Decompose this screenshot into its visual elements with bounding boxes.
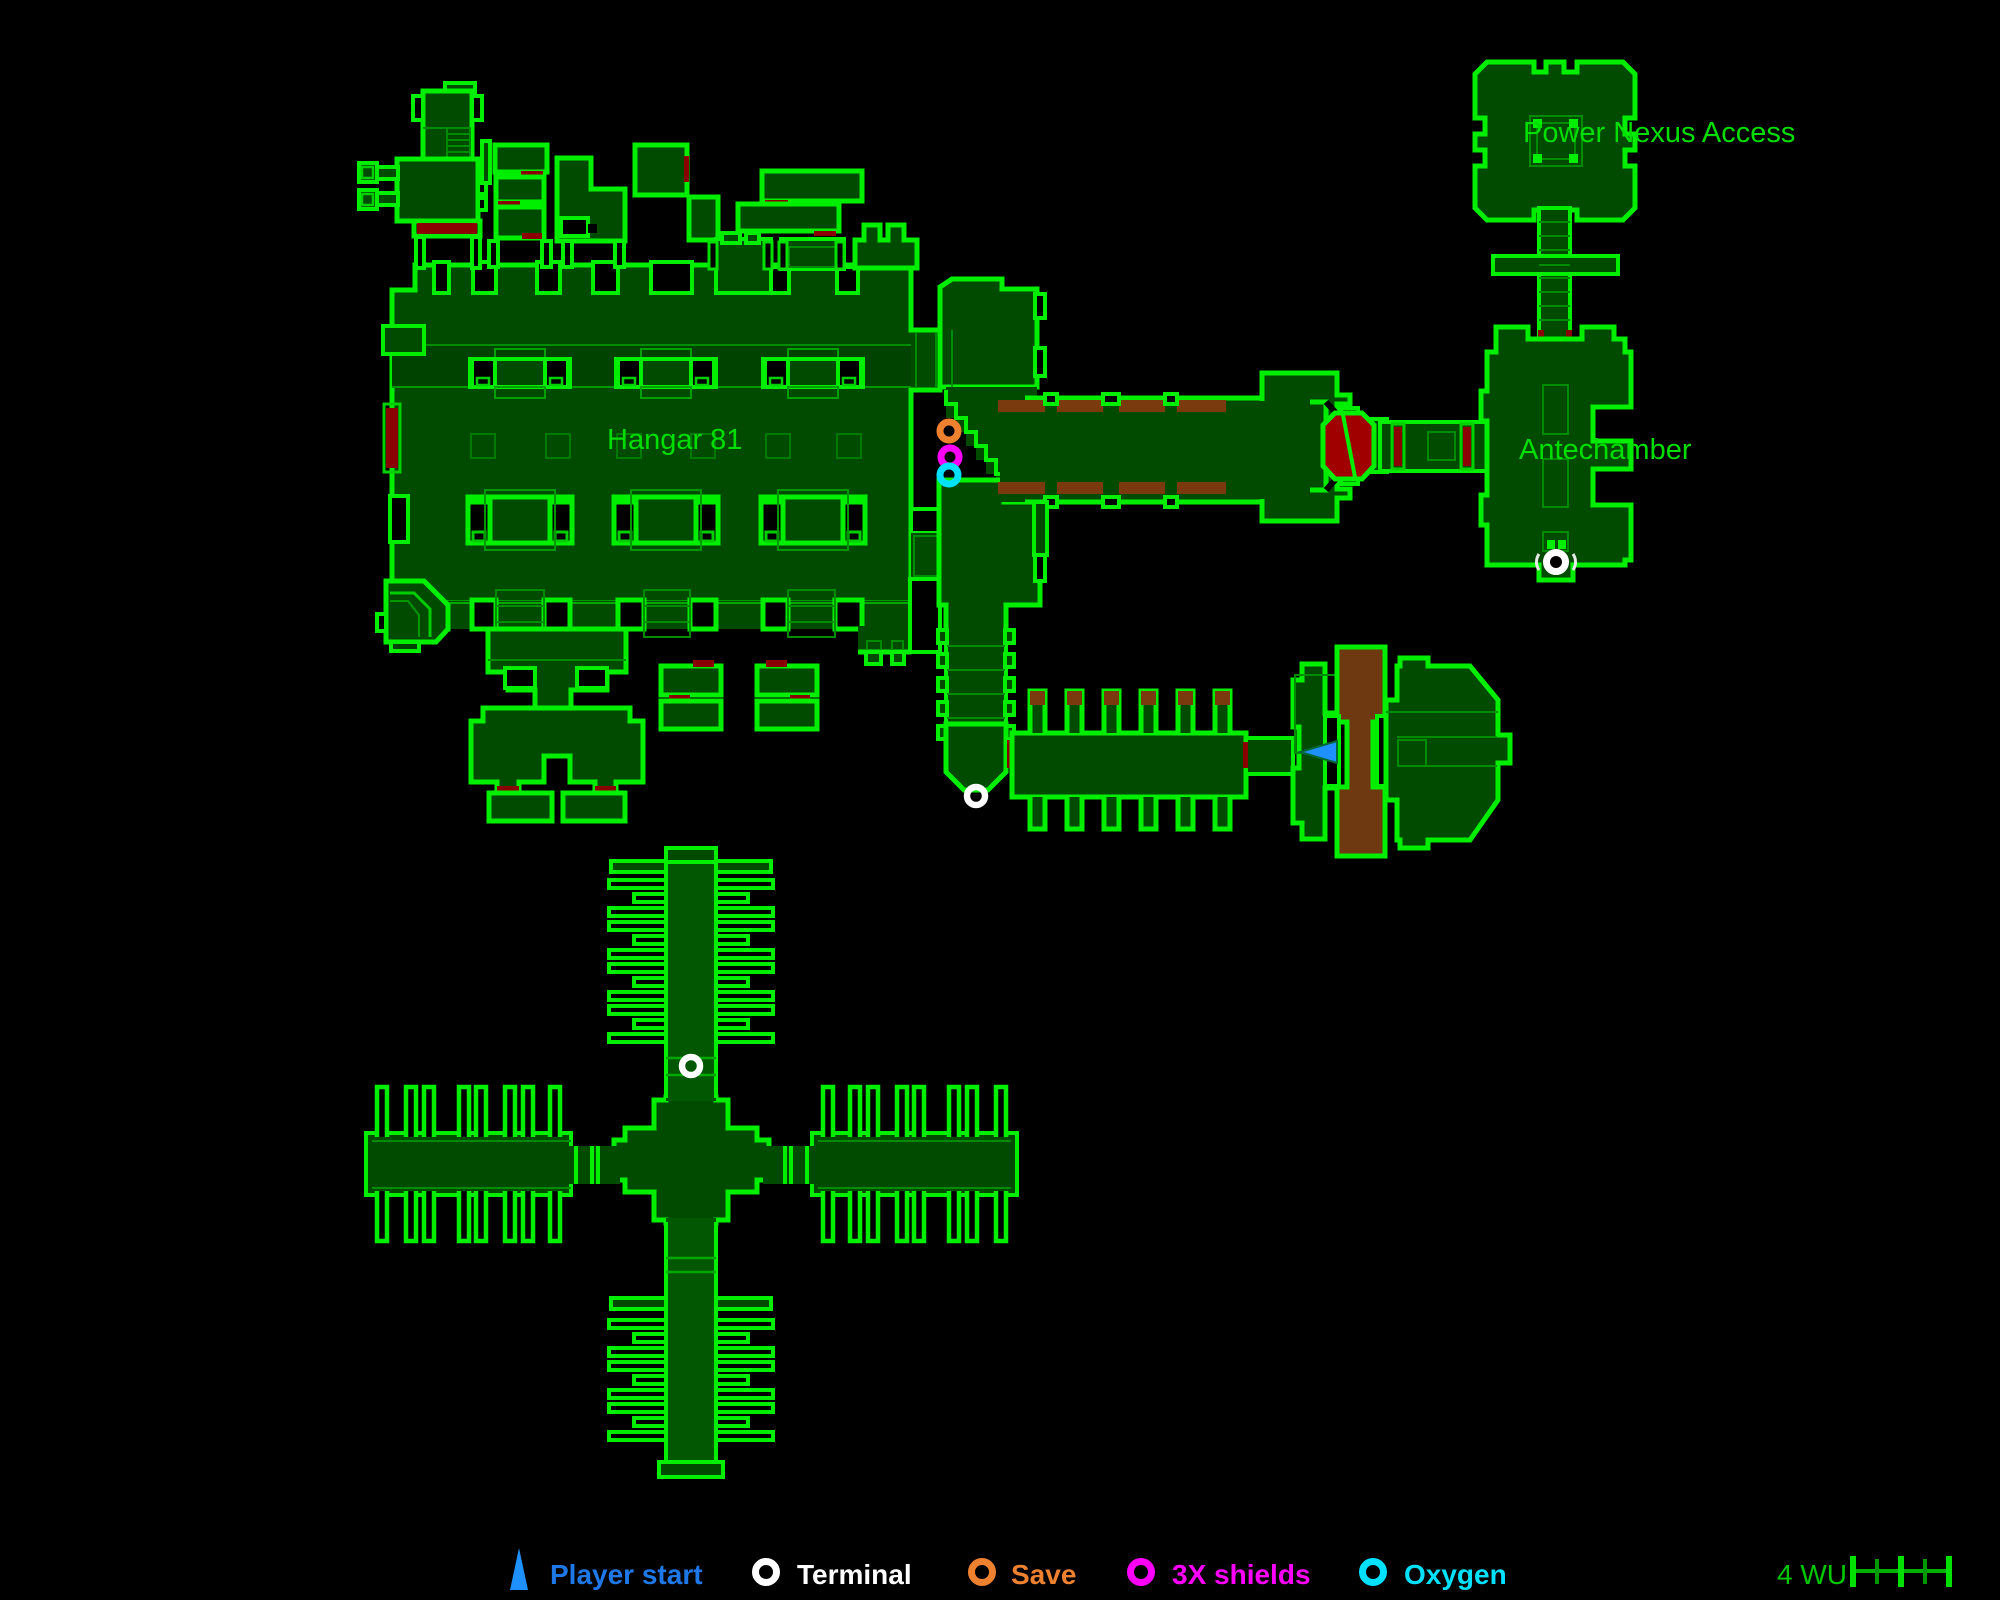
svg-text:4 WU: 4 WU — [1777, 1559, 1847, 1590]
svg-text:Save: Save — [1011, 1559, 1076, 1590]
svg-text:Hangar 81: Hangar 81 — [607, 424, 742, 456]
svg-text:Oxygen: Oxygen — [1404, 1559, 1507, 1590]
svg-text:Antechamber: Antechamber — [1519, 434, 1692, 466]
svg-text:Terminal: Terminal — [797, 1559, 912, 1590]
svg-text:Power Nexus Access: Power Nexus Access — [1523, 117, 1795, 149]
svg-text:3X shields: 3X shields — [1172, 1559, 1311, 1590]
svg-text:Player start: Player start — [550, 1559, 703, 1590]
